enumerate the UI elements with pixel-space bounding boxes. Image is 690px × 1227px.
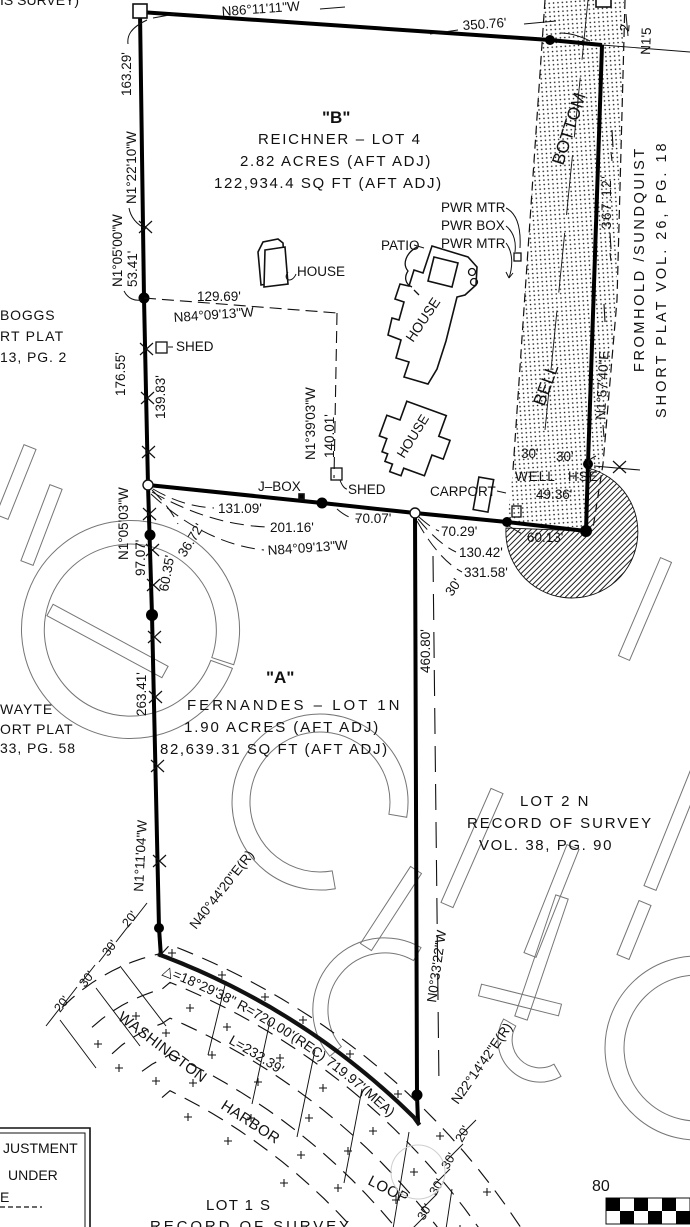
svg-text:VOL. 38, PG. 90: VOL. 38, PG. 90 [479,837,613,854]
svg-text:97.07': 97.07' [133,540,148,576]
svg-text:RECORD OF SURVEY: RECORD OF SURVEY [150,1218,352,1227]
svg-text:129.69': 129.69' [197,289,241,304]
svg-text:RT PLAT: RT PLAT [0,328,64,344]
svg-text:SHED: SHED [176,339,214,354]
svg-text:SHED: SHED [348,482,386,497]
svg-text:70.07': 70.07' [355,511,391,526]
svg-text:FERNANDES – LOT 1N: FERNANDES – LOT 1N [187,697,402,714]
svg-text:53.41': 53.41' [125,251,140,287]
svg-text:JUSTMENT: JUSTMENT [3,1140,78,1156]
svg-text:2: 2 [617,23,633,32]
svg-text:SHORT PLAT VOL. 26, PG. 18: SHORT PLAT VOL. 26, PG. 18 [654,140,670,418]
svg-text:WELL: WELL [515,469,556,484]
svg-text:N1°05'03"W: N1°05'03"W [116,487,131,560]
svg-text:367.12': 367.12' [599,175,614,229]
svg-text:331.58': 331.58' [464,565,508,580]
svg-text:PATIO: PATIO [381,238,420,253]
svg-text:2.82 ACRES (AFT ADJ): 2.82 ACRES (AFT ADJ) [240,153,432,170]
svg-text:UNDER: UNDER [8,1167,58,1183]
svg-text:13, PG. 2: 13, PG. 2 [0,349,67,365]
svg-text:140.01': 140.01' [322,414,337,458]
svg-text:LOT 1 S: LOT 1 S [206,1197,271,1214]
svg-text:33, PG. 58: 33, PG. 58 [0,740,76,756]
svg-text:PWR MTR: PWR MTR [441,200,506,215]
svg-text:176.55': 176.55' [113,352,128,396]
svg-text:130.42': 130.42' [459,545,503,560]
svg-text:80: 80 [592,1178,610,1195]
svg-text:460.80': 460.80' [418,629,433,673]
svg-text:E: E [0,1189,9,1205]
svg-text:PWR MTR: PWR MTR [441,236,506,251]
svg-text:FROMHOLD /SUNDQUIST: FROMHOLD /SUNDQUIST [632,146,648,372]
svg-text:30': 30' [556,449,574,464]
svg-text:263.41': 263.41' [134,672,149,716]
svg-text:122,934.4 SQ FT (AFT ADJ): 122,934.4 SQ FT (AFT ADJ) [214,175,443,192]
svg-text:139.83': 139.83' [153,375,168,419]
svg-text:70.29': 70.29' [441,524,477,539]
svg-text:IS SURVEY): IS SURVEY) [0,0,79,8]
svg-text:1.90 ACRES (AFT ADJ): 1.90 ACRES (AFT ADJ) [184,719,380,736]
svg-text:HSE: HSE [568,469,599,484]
svg-text:J–BOX: J–BOX [258,479,301,494]
svg-text:PWR BOX: PWR BOX [441,218,505,233]
svg-text:82,639.31 SQ FT (AFT ADJ): 82,639.31 SQ FT (AFT ADJ) [160,741,389,758]
svg-text:N1°22'10"W: N1°22'10"W [124,131,139,204]
svg-text:131.09': 131.09' [218,501,262,516]
svg-text:N1'5: N1'5 [638,27,654,55]
svg-text:BOGGS: BOGGS [0,307,55,323]
svg-text:CARPORT: CARPORT [430,484,496,499]
svg-text:"A": "A" [266,668,294,687]
svg-text:30': 30' [521,446,539,461]
svg-text:ORT PLAT: ORT PLAT [0,721,73,737]
svg-text:HOUSE: HOUSE [297,264,345,279]
svg-text:N1°39'03"W: N1°39'03"W [303,387,318,460]
svg-text:RECORD OF SURVEY: RECORD OF SURVEY [467,815,653,832]
svg-text:WAYTE: WAYTE [0,701,53,717]
svg-text:"B": "B" [322,108,350,127]
svg-text:REICHNER – LOT 4: REICHNER – LOT 4 [258,131,422,148]
svg-text:163.29': 163.29' [119,52,134,96]
svg-text:60.13': 60.13' [527,530,563,545]
svg-text:49.36': 49.36' [536,487,572,502]
svg-text:350.76': 350.76' [462,15,507,33]
svg-text:N1°05'00"W: N1°05'00"W [110,214,125,287]
svg-text:201.16': 201.16' [270,520,314,535]
svg-text:LOT 2 N: LOT 2 N [520,793,590,810]
